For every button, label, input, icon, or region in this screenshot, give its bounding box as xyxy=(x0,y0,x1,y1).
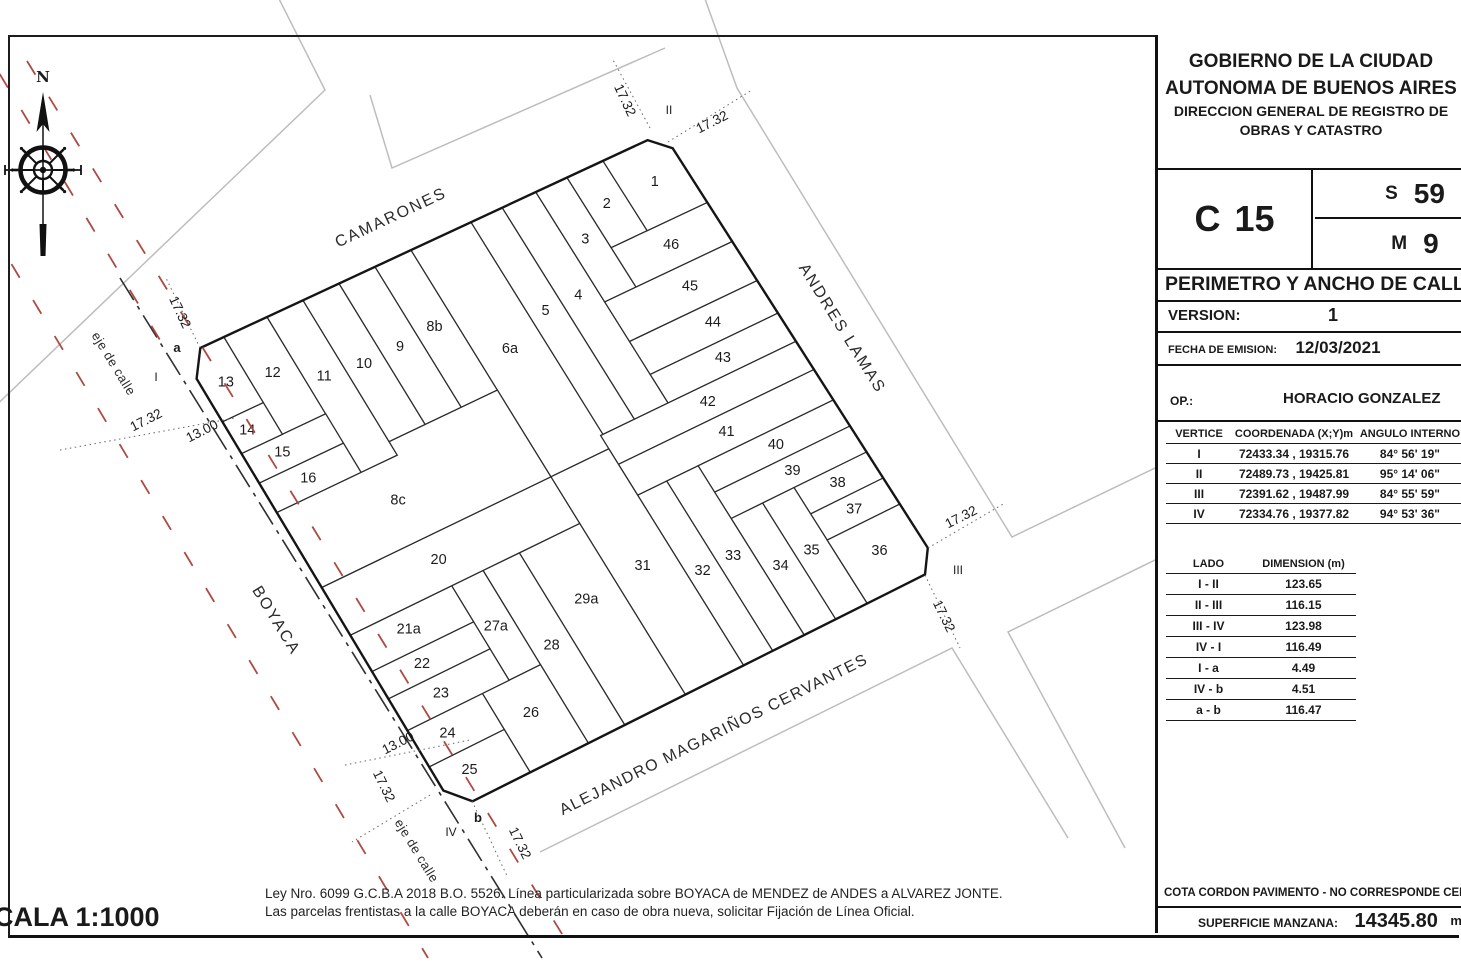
block-area-label: SUPERFICIE MANZANA: xyxy=(1198,916,1338,930)
table-cell: 84° 55' 59" xyxy=(1356,484,1461,504)
side-dimension-table: LADODIMENSION (m)I - II123.65II - III116… xyxy=(1166,555,1356,721)
seccion-letter: S xyxy=(1385,183,1398,205)
block-area-value: 14345.80 xyxy=(1354,910,1437,932)
table-row: I - a4.49 xyxy=(1166,658,1356,679)
table-row: III - IV123.98 xyxy=(1166,616,1356,637)
table-cell: II xyxy=(1166,464,1232,484)
table-cell: 72433.34 , 19315.76 xyxy=(1232,444,1356,464)
table-row: I - II123.65 xyxy=(1166,574,1356,595)
version-value: 1 xyxy=(1328,300,1338,331)
table-cell: 4.49 xyxy=(1251,658,1356,679)
agency-name-line1: GOBIERNO DE LA CIUDAD xyxy=(1158,48,1461,75)
parcel-codes: C 15 S 59 M 9 xyxy=(1158,170,1461,270)
vertex-table-section: VERTICECOORDENADA (X;Y)mANGULO INTERNOI7… xyxy=(1158,425,1461,524)
table-cell: I - a xyxy=(1166,658,1251,679)
table-cell: 84° 56' 19" xyxy=(1356,444,1461,464)
table-cell: 116.49 xyxy=(1251,637,1356,658)
emission-date-label: FECHA DE EMISION: xyxy=(1168,344,1277,356)
table-cell: 72489.73 , 19425.81 xyxy=(1232,464,1356,484)
table-cell: 72391.62 , 19487.99 xyxy=(1232,484,1356,504)
vertex-table: VERTICECOORDENADA (X;Y)mANGULO INTERNOI7… xyxy=(1166,425,1461,524)
table-cell: 116.15 xyxy=(1251,595,1356,616)
table-cell: III - IV xyxy=(1166,616,1251,637)
circunscripcion-cell: C 15 xyxy=(1158,170,1313,268)
emission-date-value: 12/03/2021 xyxy=(1295,338,1380,357)
table-cell: 116.47 xyxy=(1251,700,1356,721)
version-row: VERSION: 1 xyxy=(1158,300,1461,333)
agency-name-line2: AUTONOMA DE BUENOS AIRES xyxy=(1158,75,1461,102)
legal-note: Ley Nro. 6099 G.C.B.A 2018 B.O. 5526. Lí… xyxy=(265,885,985,921)
circunscripcion-letter: C xyxy=(1194,198,1220,240)
table-cell: a - b xyxy=(1166,700,1251,721)
cadastral-sheet: { "panel": { "header": ["GOBIERNO DE LA … xyxy=(0,0,1461,971)
table-row: a - b116.47 xyxy=(1166,700,1356,721)
table-cell: 123.98 xyxy=(1251,616,1356,637)
table-cell: 95° 14' 06" xyxy=(1356,464,1461,484)
column-header: VERTICE xyxy=(1166,425,1232,444)
table-row: II - III116.15 xyxy=(1166,595,1356,616)
table-cell: I xyxy=(1166,444,1232,464)
table-cell: 94° 53' 36" xyxy=(1356,504,1461,524)
legal-note-line2: Las parcelas frentistas a la calle BOYAC… xyxy=(265,903,985,921)
agency-header: GOBIERNO DE LA CIUDAD AUTONOMA DE BUENOS… xyxy=(1158,35,1461,170)
manzana-cell: M 9 xyxy=(1315,219,1461,268)
table-cell: 4.51 xyxy=(1251,679,1356,700)
document-title: PERIMETRO Y ANCHO DE CALLE xyxy=(1158,268,1461,302)
operator-label: OP.: xyxy=(1170,394,1193,408)
circunscripcion-number: 15 xyxy=(1234,198,1274,240)
table-cell: IV - b xyxy=(1166,679,1251,700)
table-cell: III xyxy=(1166,484,1232,504)
scale-label: ESCALA 1:1000 xyxy=(0,902,160,933)
column-header: COORDENADA (X;Y)m xyxy=(1232,425,1356,444)
version-label: VERSION: xyxy=(1168,307,1241,324)
side-dimension-table-section: LADODIMENSION (m)I - II123.65II - III116… xyxy=(1158,555,1461,721)
table-cell: 123.65 xyxy=(1251,574,1356,595)
table-row: IV - b4.51 xyxy=(1166,679,1356,700)
table-row: IV72334.76 , 19377.8294° 53' 36" xyxy=(1166,504,1461,524)
column-header: DIMENSION (m) xyxy=(1251,555,1356,574)
table-cell: IV xyxy=(1166,504,1232,524)
column-header: LADO xyxy=(1166,555,1251,574)
table-row: IV - I116.49 xyxy=(1166,637,1356,658)
table-cell: IV - I xyxy=(1166,637,1251,658)
seccion-number: 59 xyxy=(1414,178,1445,210)
block-area-row: SUPERFICIE MANZANA: 14345.80 m² xyxy=(1158,908,1461,933)
title-block-panel: GOBIERNO DE LA CIUDAD AUTONOMA DE BUENOS… xyxy=(1155,35,1461,933)
operator-row: OP.: HORACIO GONZALEZ xyxy=(1158,364,1461,422)
block-area-unit: m² xyxy=(1450,913,1461,928)
emission-date-row: FECHA DE EMISION: 12/03/2021 xyxy=(1158,331,1461,366)
seccion-cell: S 59 xyxy=(1315,170,1461,219)
table-row: II72489.73 , 19425.8195° 14' 06" xyxy=(1166,464,1461,484)
operator-value: HORACIO GONZALEZ xyxy=(1283,390,1441,407)
agency-dept-line1: DIRECCION GENERAL DE REGISTRO DE xyxy=(1158,102,1461,121)
table-row: III72391.62 , 19487.9984° 55' 59" xyxy=(1166,484,1461,504)
manzana-number: 9 xyxy=(1423,228,1439,260)
legal-note-line1: Ley Nro. 6099 G.C.B.A 2018 B.O. 5526. Lí… xyxy=(265,885,985,903)
cota-note: COTA CORDON PAVIMENTO - NO CORRESPONDE C… xyxy=(1158,878,1461,908)
table-row: I72433.34 , 19315.7684° 56' 19" xyxy=(1166,444,1461,464)
manzana-letter: M xyxy=(1391,233,1407,255)
agency-dept-line2: OBRAS Y CATASTRO xyxy=(1158,121,1461,140)
table-cell: I - II xyxy=(1166,574,1251,595)
column-header: ANGULO INTERNO xyxy=(1356,425,1461,444)
table-cell: 72334.76 , 19377.82 xyxy=(1232,504,1356,524)
table-cell: II - III xyxy=(1166,595,1251,616)
